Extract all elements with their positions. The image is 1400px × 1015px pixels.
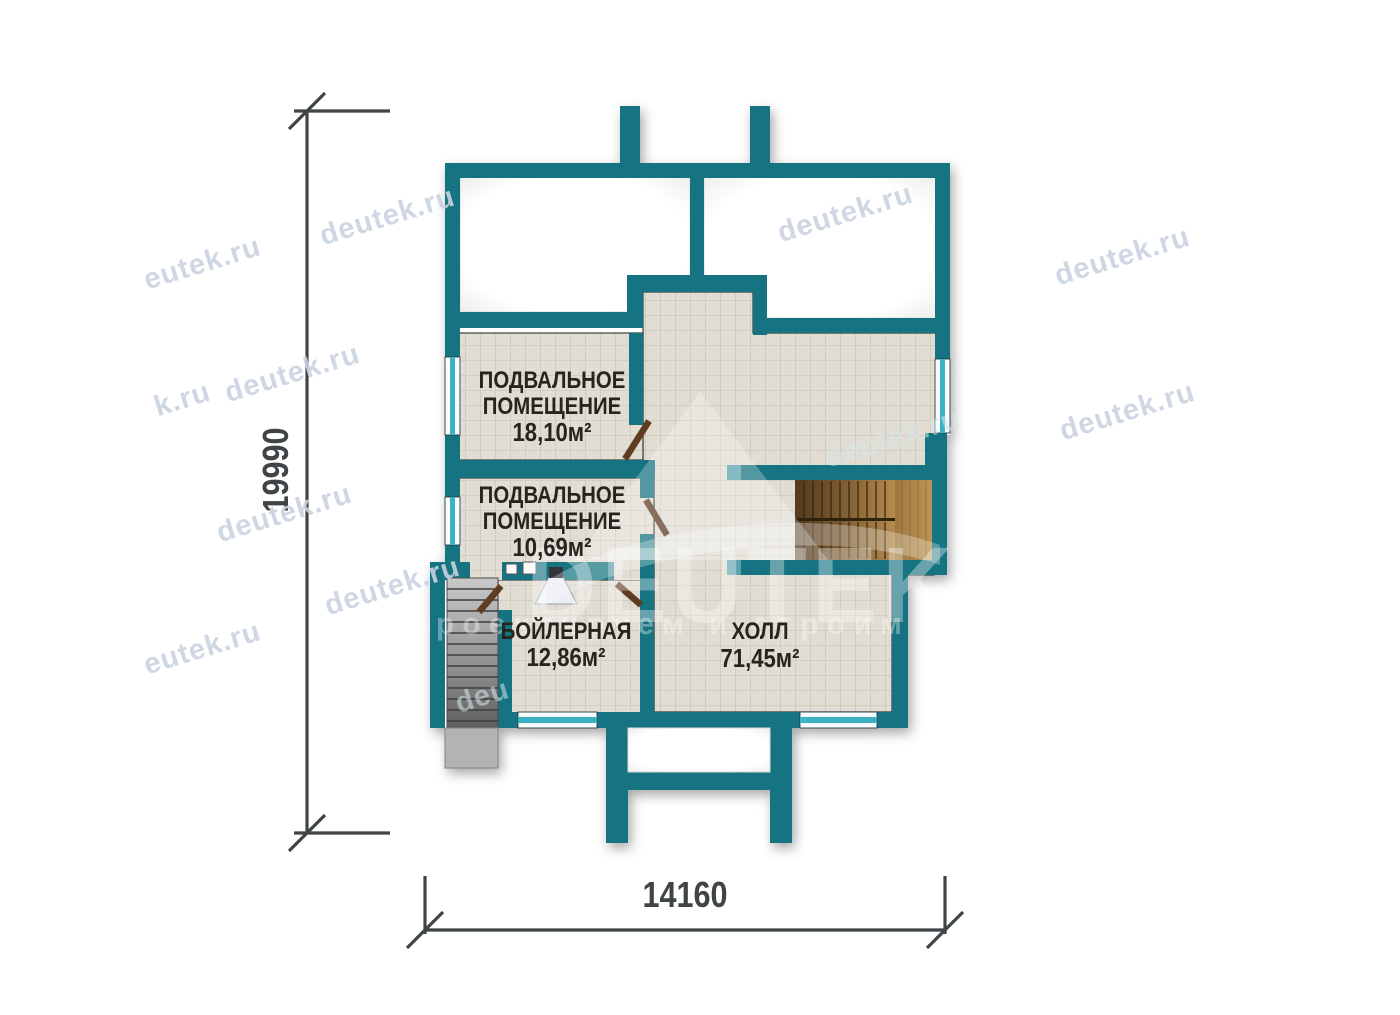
label-hall: ХОЛЛ 71,45м² xyxy=(721,617,800,673)
room-name-line: ПОДВАЛЬНОЕ xyxy=(479,366,626,393)
room-name-line: ПОМЕЩЕНИЕ xyxy=(483,392,621,419)
stair-flight-divider xyxy=(795,518,895,521)
dim-value-horizontal: 14160 xyxy=(642,876,727,916)
room-name-line: ХОЛЛ xyxy=(731,617,788,644)
room-area: 71,45м² xyxy=(721,644,800,673)
floor-entry-gap-patch xyxy=(468,562,502,580)
wall-whiteroom-right-bottom xyxy=(753,318,950,333)
wall-porch-leg-right xyxy=(770,728,792,843)
wall-column-top xyxy=(627,275,767,292)
room-name-line: ПОДВАЛЬНОЕ xyxy=(479,481,626,508)
wall-porch-bar xyxy=(628,772,770,790)
window-left-lower xyxy=(445,497,460,545)
window-glass xyxy=(800,717,877,723)
watermark-text: eutek.ru xyxy=(140,615,265,681)
watermark-text: eutek.ru xyxy=(140,230,265,296)
wall-top-divider xyxy=(690,177,704,277)
exterior-stair-pad xyxy=(445,728,498,768)
floor-plan-canvas: 19990 14160 xyxy=(0,0,1400,1015)
watermark-text: k.ru xyxy=(150,376,214,423)
watermark-text: deutek.ru xyxy=(1051,221,1194,292)
watermark-text: deutek.ru xyxy=(1056,376,1199,447)
wall-room-divider-h xyxy=(445,460,655,478)
watermark-text: deutek.ru xyxy=(316,181,459,252)
dimension-horizontal: 14160 xyxy=(407,876,963,948)
wall-top xyxy=(445,163,950,178)
window-bottom-hall xyxy=(800,712,877,728)
room-area: 12,86м² xyxy=(527,643,606,672)
wall-vent-1 xyxy=(506,564,517,574)
stair-flight-upper xyxy=(795,480,895,519)
wall-right-pre-window xyxy=(935,333,950,359)
wall-stub-right xyxy=(750,106,770,164)
window-left-upper xyxy=(445,357,460,435)
wall-stub-left xyxy=(620,106,640,164)
window-glass xyxy=(518,717,597,723)
window-bottom-boiler xyxy=(518,712,597,728)
wall-porch-leg-left xyxy=(606,728,628,843)
porch-well xyxy=(628,728,770,772)
brand-tagline: проектируем и строим xyxy=(410,607,911,641)
wall-room1810-right xyxy=(629,333,643,425)
room-name-line: БОЙЛЕРНАЯ xyxy=(501,617,632,644)
window-glass xyxy=(450,357,455,435)
room-area: 10,69м² xyxy=(513,533,592,562)
watermark-text: deutek.ru xyxy=(221,338,364,409)
window-glass xyxy=(450,497,455,545)
room-name-line: ПОМЕЩЕНИЕ xyxy=(483,507,621,534)
wall-whiteroom-left-bottom xyxy=(445,312,643,328)
room-area: 18,10м² xyxy=(513,418,592,447)
